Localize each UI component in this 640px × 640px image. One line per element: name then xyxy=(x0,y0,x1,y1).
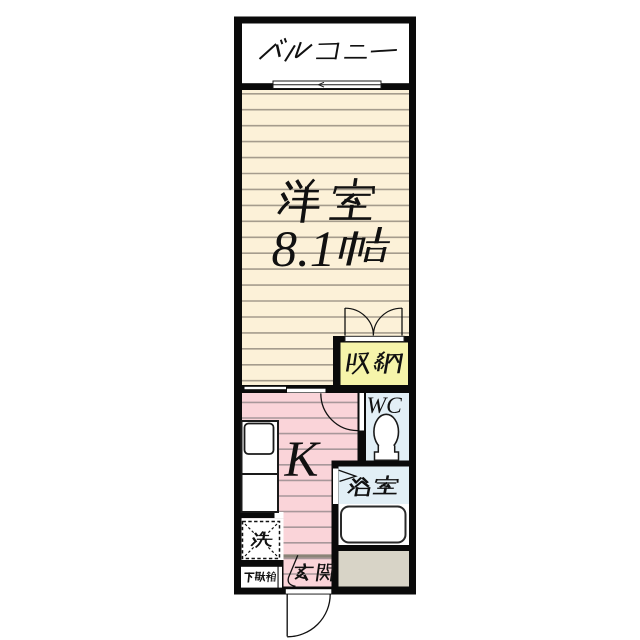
svg-text:8.1: 8.1 xyxy=(272,222,336,278)
svg-text:WC: WC xyxy=(367,393,403,419)
svg-text:K: K xyxy=(284,432,322,488)
